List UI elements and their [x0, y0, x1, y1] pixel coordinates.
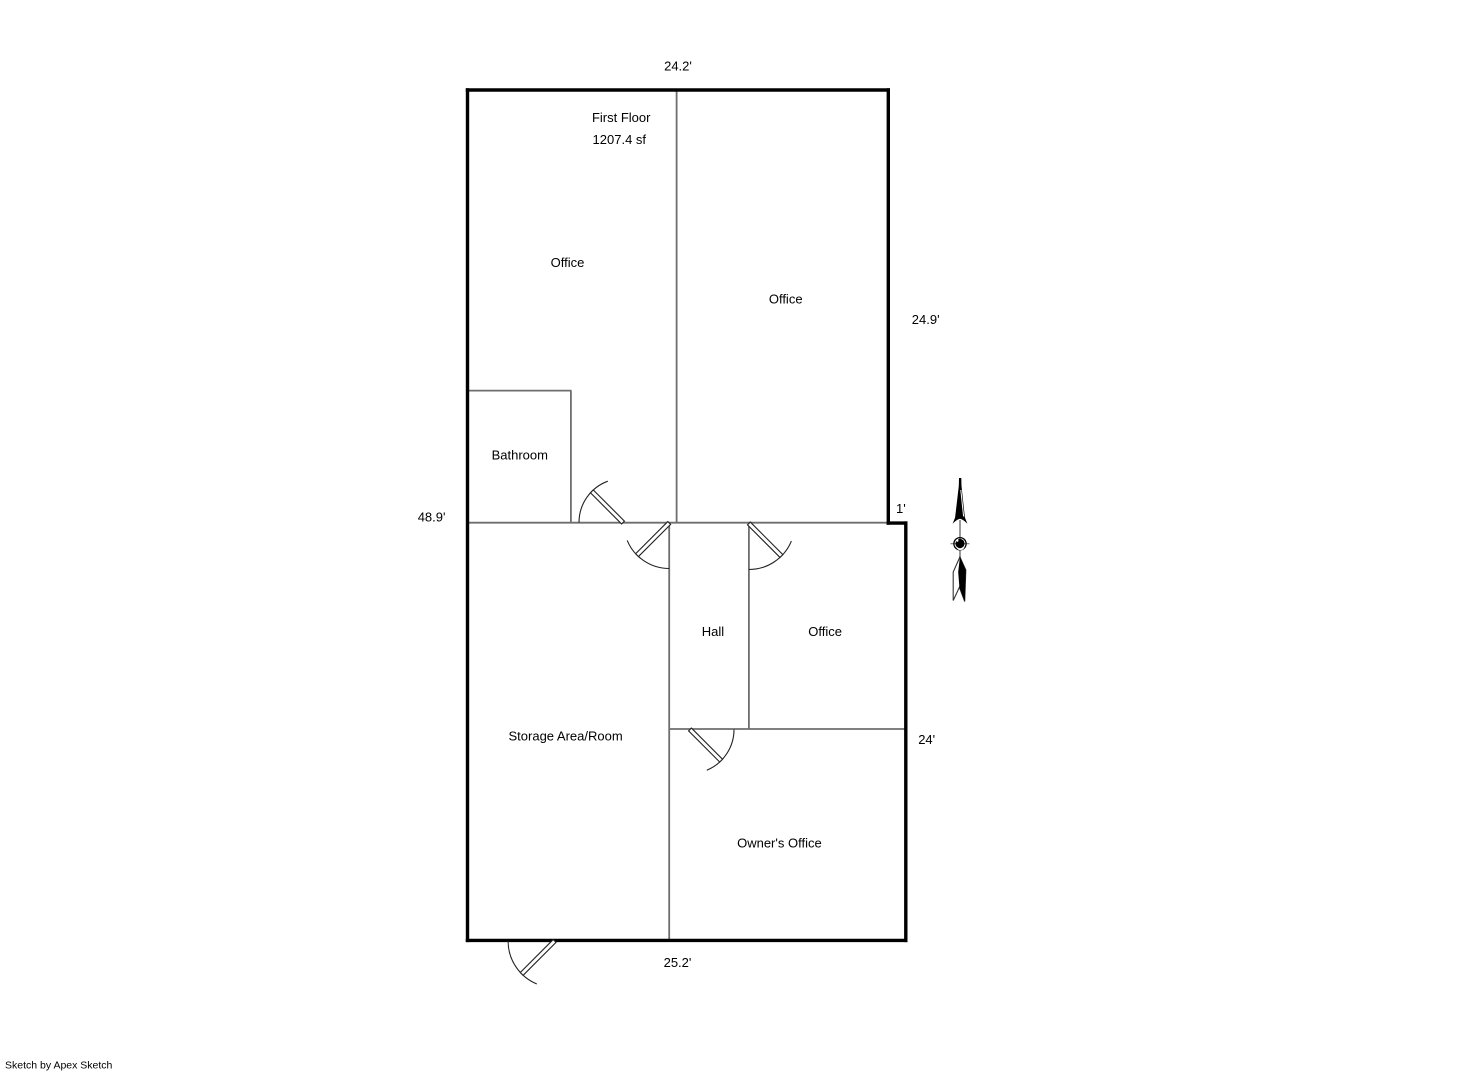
svg-text:48.9': 48.9': [418, 509, 446, 524]
svg-text:24': 24': [918, 732, 935, 747]
svg-text:Storage Area/Room: Storage Area/Room: [509, 729, 623, 744]
svg-text:Office: Office: [551, 255, 585, 270]
svg-text:Hall: Hall: [702, 624, 725, 639]
svg-text:Sketch by Apex Sketch: Sketch by Apex Sketch: [5, 1060, 113, 1072]
svg-text:25.2': 25.2': [664, 955, 692, 970]
svg-text:Office: Office: [769, 291, 803, 306]
svg-text:Bathroom: Bathroom: [492, 448, 548, 463]
svg-text:24.2': 24.2': [664, 59, 692, 74]
svg-text:Office: Office: [808, 624, 842, 639]
svg-text:1207.4 sf: 1207.4 sf: [593, 132, 647, 147]
svg-text:First Floor: First Floor: [592, 110, 651, 125]
svg-text:1': 1': [896, 501, 906, 516]
svg-text:24.9': 24.9': [912, 312, 940, 327]
svg-text:Owner's Office: Owner's Office: [737, 835, 822, 850]
